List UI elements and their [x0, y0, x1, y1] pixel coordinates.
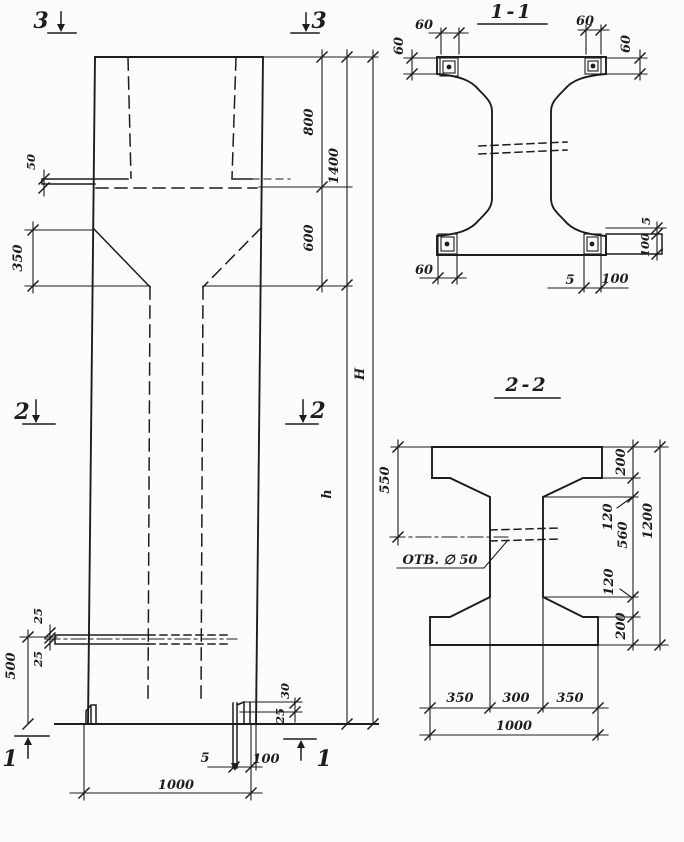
technical-drawing: 800 1400 600 H h 50 350 500 25 25 30 25 …	[0, 0, 684, 842]
hole-label: ОТВ. ∅ 50	[403, 553, 478, 568]
dim-550: 550	[378, 466, 393, 493]
section-1-1: 1-1 60 60	[392, 1, 666, 293]
embedded-plate-top-left	[440, 58, 458, 76]
section-marker-2-right-label: 2	[309, 398, 325, 424]
dim-25-top: 25	[31, 608, 45, 625]
dim-60-top-right: 60	[576, 14, 594, 29]
dim-500: 500	[4, 652, 19, 679]
dim-350: 350	[11, 244, 26, 271]
dim-25-foot: 25	[273, 708, 287, 725]
section-marker-1-right: 1	[284, 739, 332, 772]
column-outline	[88, 57, 263, 724]
dim-800: 800	[302, 108, 317, 135]
section-marker-1-right-label: 1	[316, 746, 331, 772]
taper-edge-right-hidden	[203, 228, 261, 287]
section-marker-2-left: 2	[13, 399, 55, 425]
dim-H: H	[353, 367, 368, 381]
section-2-2: 2-2 ОТВ. ∅ 50 550 200 120 560 120 200 12…	[378, 374, 668, 740]
dim-5-base: 5	[200, 751, 209, 766]
section-1-1-dim-ticks	[407, 25, 662, 293]
section-marker-3-left-label: 3	[33, 8, 48, 34]
section-marker-3-right: 3	[291, 8, 327, 34]
section-2-2-outline	[430, 447, 602, 645]
dim-600: 600	[302, 224, 317, 251]
taper-edge-left	[93, 228, 150, 287]
dim-30: 30	[278, 683, 292, 699]
section-marker-3-left: 3	[33, 8, 76, 34]
dim-25-bottom: 25	[31, 651, 45, 668]
dim-100-bottom: 100	[601, 272, 628, 287]
section-2-2-title: 2-2	[504, 374, 548, 396]
dim-100-base: 100	[252, 752, 279, 767]
dim-1200: 1200	[641, 503, 656, 539]
dim-350-left: 350	[446, 691, 473, 706]
ledge-plate	[42, 179, 252, 184]
dim-60-bottom-left: 60	[415, 263, 433, 278]
section-1-1-outline	[437, 57, 606, 255]
dim-1000-section: 1000	[496, 719, 532, 734]
dim-200-top: 200	[614, 448, 629, 476]
dim-5-bottom: 5	[565, 273, 574, 288]
dim-h: h	[320, 489, 335, 498]
dim-60-top-left: 60	[415, 18, 433, 33]
cap-hidden-edges	[96, 58, 257, 188]
embedded-plate-bottom-right	[584, 234, 601, 254]
hole-hidden-edges	[490, 528, 560, 541]
section-marker-3-right-label: 3	[311, 8, 326, 34]
dim-350-right: 350	[556, 691, 583, 706]
dim-5-side: 5	[639, 217, 653, 225]
column-elevation: 800 1400 600 H h 50 350 500 25 25 30 25 …	[2, 8, 378, 800]
dim-50: 50	[24, 154, 38, 170]
dim-300: 300	[502, 691, 529, 706]
section-marker-2-left-label: 2	[13, 399, 29, 425]
embedded-plate-bottom-left	[438, 234, 457, 254]
web-hidden-edges	[148, 287, 203, 700]
dim-1400: 1400	[327, 148, 342, 184]
section-marker-1-left-label: 1	[2, 746, 17, 772]
dim-120-top: 120	[601, 503, 616, 530]
dim-1000: 1000	[158, 778, 194, 793]
dim-560: 560	[616, 521, 631, 548]
section-marker-2-right: 2	[286, 398, 326, 424]
dim-60-left: 60	[392, 37, 407, 55]
extension-lines	[20, 57, 378, 800]
drawing-sheet: 800 1400 600 H h 50 350 500 25 25 30 25 …	[0, 0, 684, 842]
dim-60-right: 60	[619, 35, 634, 53]
embedded-plate-top-right	[585, 58, 601, 74]
dim-100-side: 100	[638, 233, 652, 257]
section-1-1-title: 1-1	[490, 1, 533, 23]
section-marker-1-left: 1	[2, 736, 49, 772]
dim-120-bottom: 120	[602, 568, 617, 595]
dim-200-bottom: 200	[614, 612, 629, 640]
